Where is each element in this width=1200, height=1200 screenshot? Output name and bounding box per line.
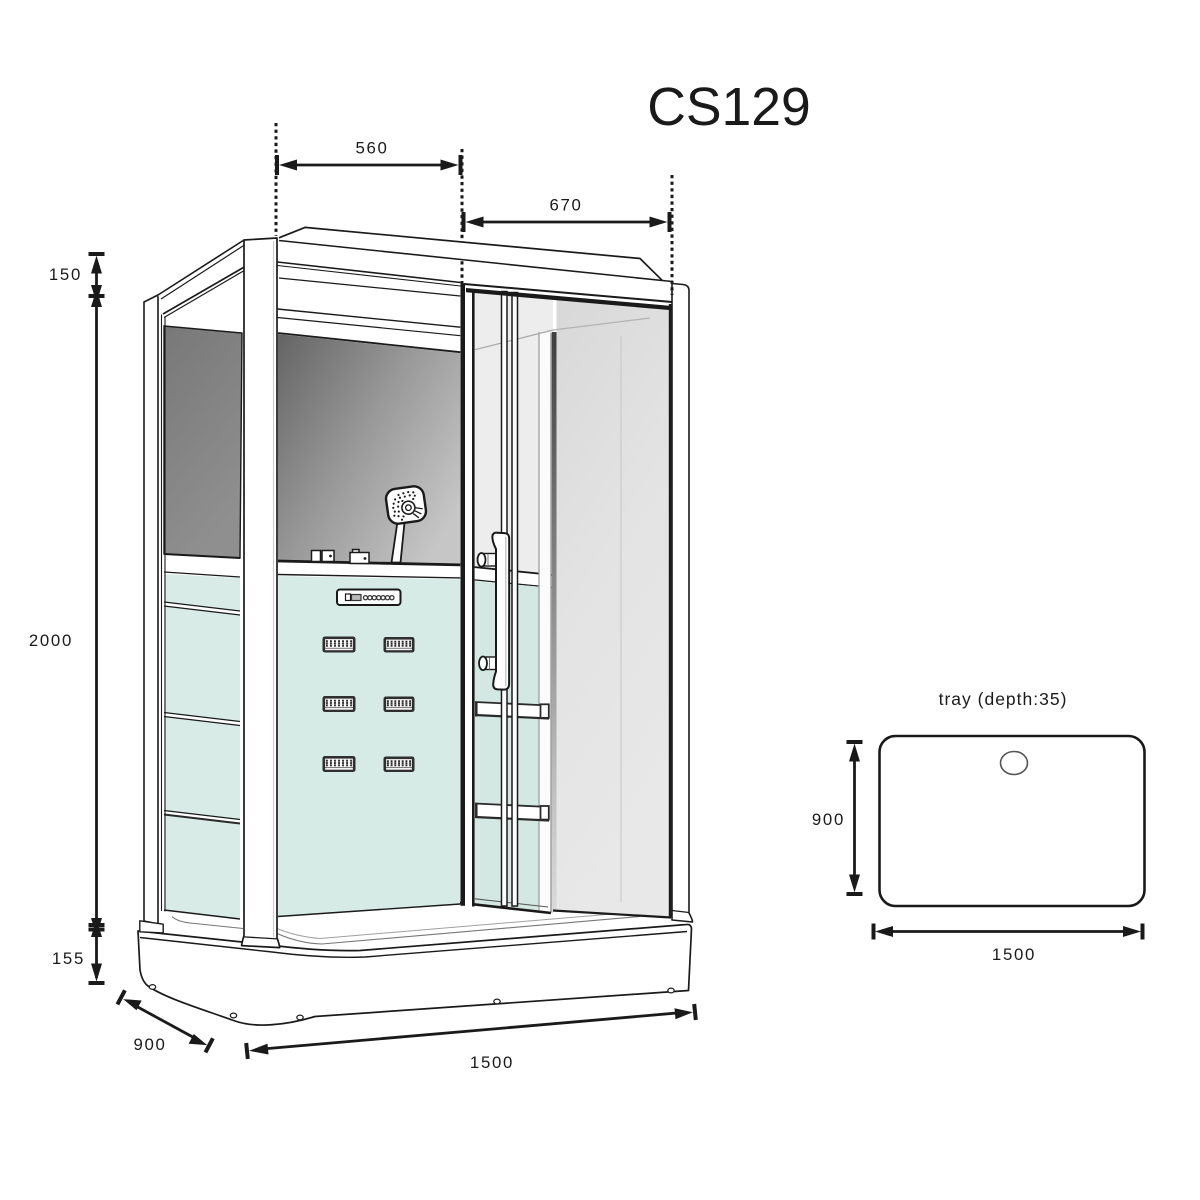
svg-text:CS129: CS129 — [647, 78, 811, 137]
svg-text:670: 670 — [549, 196, 582, 215]
svg-text:1500: 1500 — [992, 945, 1036, 964]
svg-text:900: 900 — [133, 1035, 166, 1054]
svg-text:tray (depth:35): tray (depth:35) — [939, 689, 1068, 709]
svg-text:2000: 2000 — [29, 631, 73, 650]
svg-text:155: 155 — [52, 949, 85, 968]
svg-text:1500: 1500 — [470, 1053, 514, 1072]
svg-text:560: 560 — [355, 139, 388, 158]
svg-text:150: 150 — [49, 265, 82, 284]
svg-text:900: 900 — [812, 810, 845, 829]
